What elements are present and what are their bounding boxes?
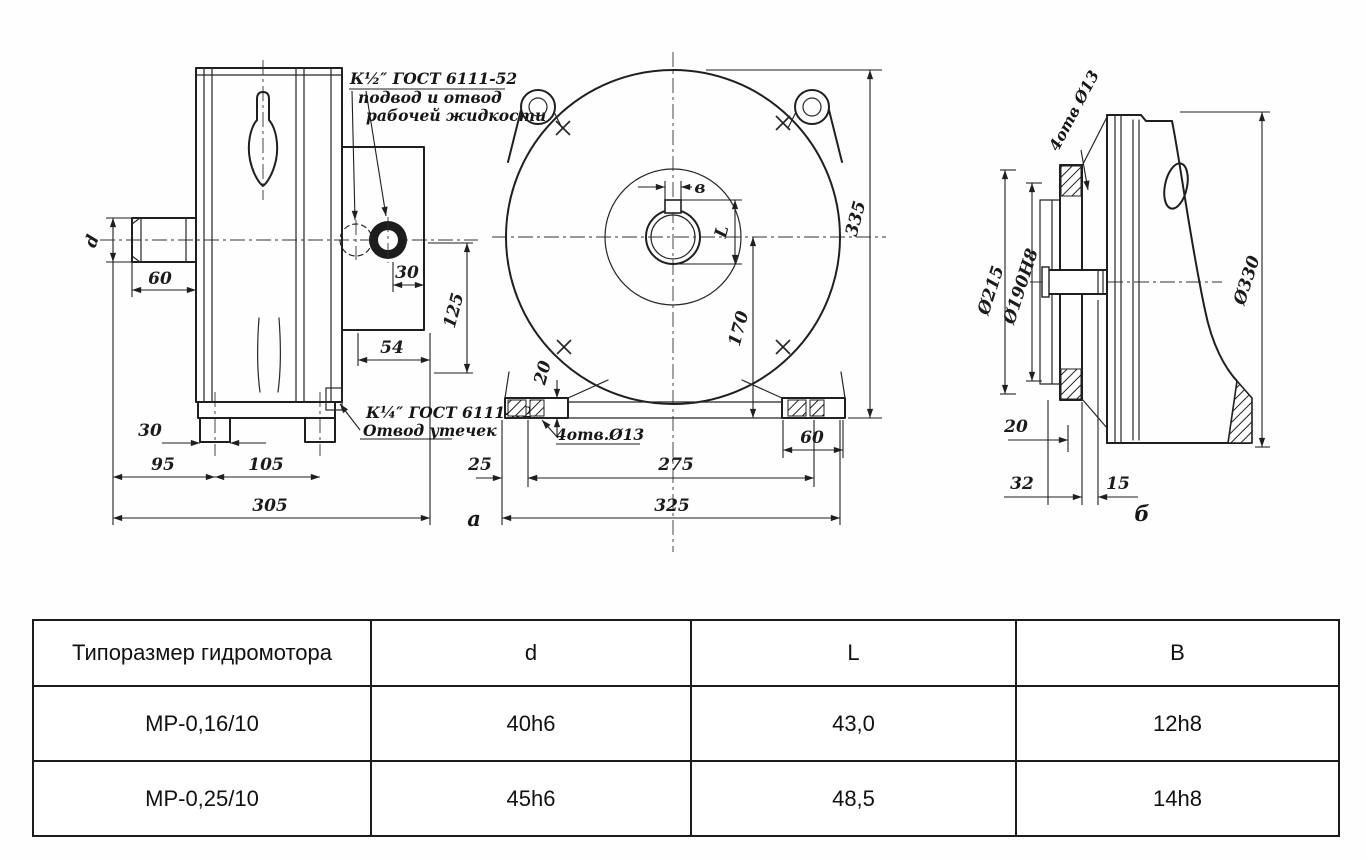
cell-d-1: 40h6 xyxy=(371,686,691,761)
cell-type-2: МР-0,25/10 xyxy=(33,761,371,836)
callout-drain-line2: Отвод утечек xyxy=(363,421,497,440)
dim-label-15: 15 xyxy=(1106,474,1130,494)
dim-label-170: 170 xyxy=(725,309,754,349)
view-b-geometry xyxy=(1030,115,1252,443)
dim-label-335: 335 xyxy=(842,199,871,238)
dim-label-32: 32 xyxy=(1010,474,1034,494)
dim-label-325: 325 xyxy=(654,496,690,516)
cell-l-1: 43,0 xyxy=(691,686,1016,761)
view-front-geometry xyxy=(492,52,886,552)
dim-label-d: d xyxy=(81,232,104,250)
dim-label-105: 105 xyxy=(248,455,284,475)
col-header-type: Типоразмер гидромотора xyxy=(33,620,371,686)
cell-d-2: 45h6 xyxy=(371,761,691,836)
cell-l-2: 48,5 xyxy=(691,761,1016,836)
dim-label-d330: Ø330 xyxy=(1230,253,1265,308)
callout-supply-line1: К½″ ГОСТ 6111-52 xyxy=(349,69,517,88)
keyway-depth-label: L xyxy=(711,223,734,241)
col-header-d: d xyxy=(371,620,691,686)
dim-label-305: 305 xyxy=(252,496,288,516)
col-header-l: L xyxy=(691,620,1016,686)
spec-table-container: Типоразмер гидромотора d L B МР-0,16/10 … xyxy=(32,619,1340,837)
cell-b-2: 14h8 xyxy=(1016,761,1339,836)
dim-label-95: 95 xyxy=(151,455,175,475)
cell-b-1: 12h8 xyxy=(1016,686,1339,761)
dim-label-60-shaft: 60 xyxy=(148,269,172,289)
dim-label-54: 54 xyxy=(380,338,404,358)
cell-type-1: МР-0,16/10 xyxy=(33,686,371,761)
table-header-row: Типоразмер гидромотора d L B xyxy=(33,620,1339,686)
dim-label-275: 275 xyxy=(657,455,694,475)
keyway-width-label: в xyxy=(694,178,705,198)
dim-label-60-foot: 60 xyxy=(800,428,824,448)
technical-drawing: d 60 30 54 125 30 95 105 305 К½″ ГОСТ 61… xyxy=(0,0,1367,600)
dim-label-125: 125 xyxy=(440,291,469,330)
view-front: в L 335 170 20 4отв.Ø13 25 275 60 325 а xyxy=(467,52,886,552)
supply-port-callout: К½″ ГОСТ 6111-52 подвод и отвод рабочей … xyxy=(349,69,546,125)
view-b: 4отв Ø13 Ø215 Ø190H8 Ø330 20 32 15 б xyxy=(974,67,1270,526)
view-a-label: а xyxy=(467,506,481,531)
col-header-b: B xyxy=(1016,620,1339,686)
dim-label-d190h8: Ø190H8 xyxy=(999,246,1043,328)
scanned-drawing-page: d 60 30 54 125 30 95 105 305 К½″ ГОСТ 61… xyxy=(0,0,1367,859)
view-b-label: б xyxy=(1134,501,1149,526)
dim-label-20-flange: 20 xyxy=(1003,417,1028,437)
spec-table: Типоразмер гидромотора d L B МР-0,16/10 … xyxy=(32,619,1340,837)
table-row: МР-0,25/10 45h6 48,5 14h8 xyxy=(33,761,1339,836)
dim-label-20-pad: 20 xyxy=(530,359,556,388)
holes-note-front: 4отв.Ø13 xyxy=(556,425,644,444)
callout-supply-line2: подвод и отвод xyxy=(358,88,502,107)
dim-label-25: 25 xyxy=(467,455,492,475)
dim-label-30-foot: 30 xyxy=(138,421,162,441)
table-row: МР-0,16/10 40h6 43,0 12h8 xyxy=(33,686,1339,761)
dim-label-30-port: 30 xyxy=(395,263,419,283)
